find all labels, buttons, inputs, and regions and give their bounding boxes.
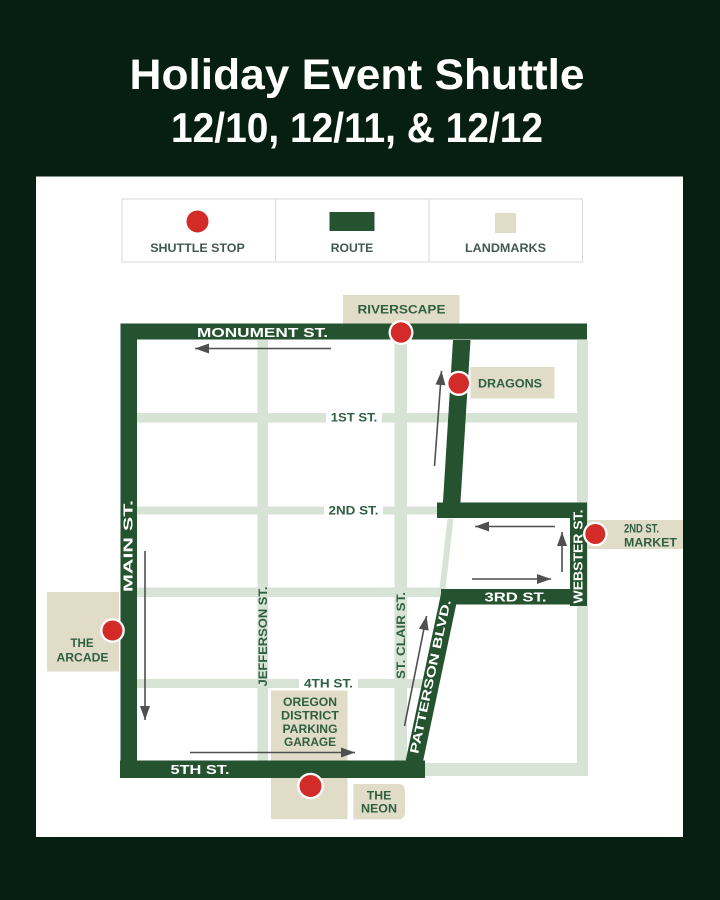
svg-text:MONUMENT ST.: MONUMENT ST. <box>197 325 328 340</box>
svg-text:PARKING: PARKING <box>283 722 338 736</box>
svg-text:Holiday Event Shuttle: Holiday Event Shuttle <box>130 51 585 99</box>
svg-text:SHUTTLE STOP: SHUTTLE STOP <box>150 241 245 255</box>
svg-text:THE: THE <box>71 636 94 650</box>
svg-text:JEFFERSON ST.: JEFFERSON ST. <box>256 587 270 687</box>
svg-text:THE: THE <box>367 789 392 803</box>
svg-text:DRAGONS: DRAGONS <box>478 377 542 391</box>
svg-text:GARAGE: GARAGE <box>284 735 336 749</box>
svg-text:MAIN ST.: MAIN ST. <box>121 500 136 592</box>
svg-text:12/10, 12/11, & 12/12: 12/10, 12/11, & 12/12 <box>171 104 543 151</box>
svg-text:ROUTE: ROUTE <box>331 241 374 255</box>
svg-text:1ST ST.: 1ST ST. <box>331 413 378 425</box>
svg-text:MARKET: MARKET <box>624 536 678 550</box>
svg-text:2ND ST.: 2ND ST. <box>624 522 659 536</box>
svg-text:WEBSTER ST.: WEBSTER ST. <box>571 510 586 604</box>
svg-text:ARCADE: ARCADE <box>57 651 109 665</box>
svg-text:NEON: NEON <box>361 802 397 816</box>
svg-text:LANDMARKS: LANDMARKS <box>465 241 546 255</box>
svg-text:ST. CLAIR ST.: ST. CLAIR ST. <box>394 592 408 679</box>
svg-text:RIVERSCAPE: RIVERSCAPE <box>358 303 446 317</box>
svg-text:5TH ST.: 5TH ST. <box>171 762 230 777</box>
svg-text:4TH ST.: 4TH ST. <box>304 679 353 691</box>
svg-text:2ND ST.: 2ND ST. <box>329 506 379 518</box>
svg-text:3RD ST.: 3RD ST. <box>485 590 547 605</box>
svg-text:OREGON: OREGON <box>283 695 337 709</box>
svg-text:DISTRICT: DISTRICT <box>281 709 340 723</box>
